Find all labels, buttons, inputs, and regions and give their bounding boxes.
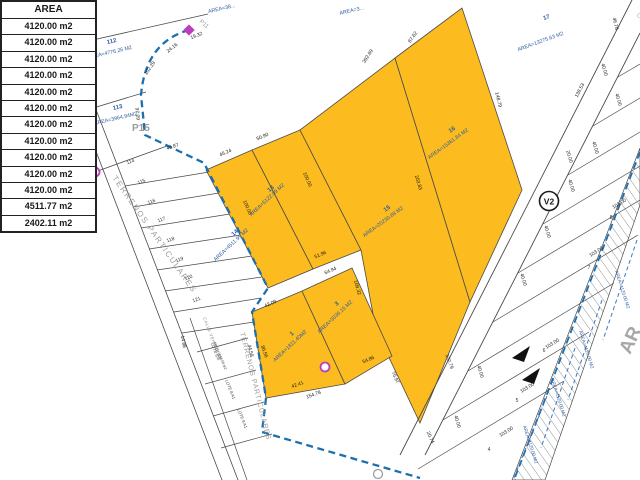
measurement: 40.00	[613, 93, 622, 107]
road-v2-badge: V2	[540, 192, 559, 211]
table-row: 4120.00 m2	[2, 149, 95, 165]
table-row: 4120.00 m2	[2, 84, 95, 100]
measurement: 64.94	[324, 266, 338, 277]
point-label-p15: P15	[132, 123, 150, 134]
lote-label: LOTE 8 A1	[236, 408, 249, 429]
lot-number: 117	[157, 216, 167, 224]
table-row: 2402.11 m2	[2, 215, 95, 231]
measurement: 154.78	[305, 390, 322, 401]
measurement: 14.88	[179, 335, 187, 349]
measurement: 20.74	[425, 431, 436, 445]
lot-number: 8	[610, 215, 613, 221]
parcel-number: 17	[542, 14, 551, 22]
measurement: 138.53	[574, 82, 586, 99]
measurement: 148.79	[493, 92, 502, 108]
cadastral-plan-canvas: V2 CALLE VEHICULAR CALLE VEHICULAR TERRE…	[0, 0, 640, 480]
measurement: 20.00	[564, 150, 573, 164]
measurement: 40.00	[475, 365, 484, 379]
lote-label: LOTE 8 A1	[224, 379, 237, 400]
measurement: 40.00	[518, 273, 527, 287]
lot-number: 114	[126, 158, 136, 166]
table-row: 4120.00 m2	[2, 182, 95, 198]
parcel-number: 112	[106, 38, 117, 46]
lot-number: 115	[137, 178, 147, 186]
measurement: 40.00	[566, 179, 575, 193]
street-label-calle-clipped: CALLE	[635, 12, 640, 30]
measurement: 24.16	[166, 42, 180, 55]
road-badge-label: V2	[544, 197, 555, 207]
table-row: 4120.00 m2	[2, 51, 95, 67]
measurement: 46.78	[611, 17, 620, 31]
lot-number: 4	[488, 447, 491, 453]
point-label-p11: P11	[198, 19, 210, 31]
measurement: 50.90	[256, 132, 270, 142]
parcel-area-clipped: AREA=3...	[339, 5, 365, 16]
table-row: 4120.00 m2	[2, 116, 95, 132]
area-table-header: AREA	[2, 2, 95, 18]
parcel-number: 113	[112, 104, 123, 112]
survey-point-circle	[374, 470, 383, 479]
area-table: AREA 4120.00 m2 4120.00 m2 4120.00 m2 41…	[0, 0, 97, 233]
lot-area-label: AREA=4120.00 M2	[614, 270, 631, 309]
table-row: 4120.00 m2	[2, 18, 95, 34]
lot-number: 119	[175, 256, 185, 264]
table-row: 4120.00 m2	[2, 34, 95, 50]
measurement: 392.69	[361, 48, 374, 64]
measurement: 40.00	[542, 225, 551, 239]
boundary-vertex-circle	[321, 363, 330, 372]
measurement: 97.09	[133, 107, 140, 120]
lot-number: 6	[543, 348, 546, 354]
table-row: 4120.00 m2	[2, 100, 95, 116]
measurement: 40.00	[590, 141, 599, 155]
measurement: 40.00	[599, 63, 608, 77]
measurement: 45.24	[219, 148, 233, 158]
lot-number: 7	[588, 265, 591, 271]
street-label-ar-partial: AR	[615, 323, 640, 357]
measurement: 103.00	[519, 381, 535, 394]
lot-number: 116	[147, 198, 157, 206]
parcel-area-clipped: AREA=38...	[208, 3, 236, 15]
measurement: 103.00	[544, 337, 560, 350]
measurement: 103.00	[498, 425, 514, 438]
north-arrow-icon	[512, 346, 530, 362]
lot-number: 5	[516, 398, 519, 404]
lot-number: 121	[192, 296, 202, 305]
parcel-area: AREA=13275.63 M2	[517, 31, 565, 53]
table-row: 4120.00 m2	[2, 166, 95, 182]
measurement: 102.29	[143, 60, 157, 76]
lot-number: 118	[166, 236, 176, 244]
table-row: 4511.77 m2	[2, 198, 95, 214]
table-row: 4120.00 m2	[2, 133, 95, 149]
measurement: 40.00	[452, 415, 461, 429]
lote-labels: LOTE 8'A AREA=1068.08 M2 LOTE 8 A1 LOTE …	[210, 341, 249, 430]
table-row: 4120.00 m2	[2, 67, 95, 83]
